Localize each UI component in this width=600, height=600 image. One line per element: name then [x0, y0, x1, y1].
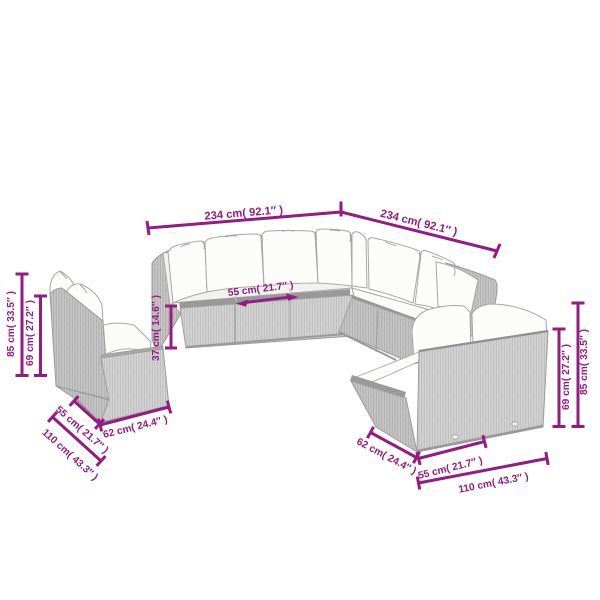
svg-text:37 cm( 14.6″ ): 37 cm( 14.6″ ) [151, 295, 162, 361]
svg-text:69 cm( 27.2″ ): 69 cm( 27.2″ ) [25, 300, 36, 366]
svg-text:85 cm( 33.5″ ): 85 cm( 33.5″ ) [6, 291, 17, 357]
svg-text:69 cm( 27.2″ ): 69 cm( 27.2″ ) [561, 344, 572, 410]
svg-text:85 cm( 33.5″ ): 85 cm( 33.5″ ) [579, 329, 590, 395]
